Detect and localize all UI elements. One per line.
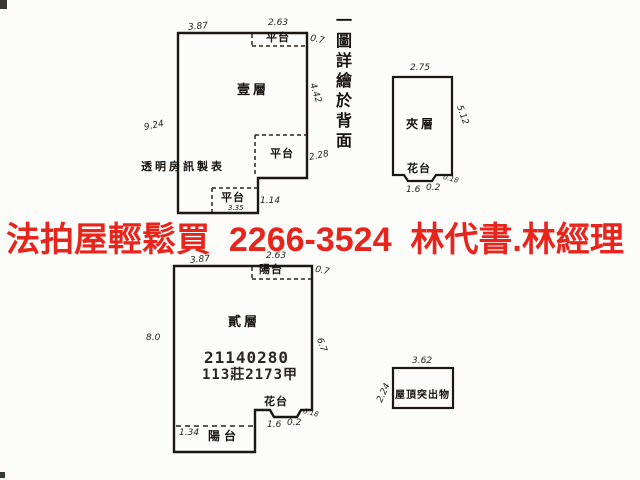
scan-artifact-bottom-left: [0, 472, 5, 478]
ff-dim-platform-bottom-height: 1.14: [260, 196, 280, 206]
sf-room-label: 貳層: [228, 316, 260, 329]
sf-dim-flower-mid: 0.2: [287, 418, 301, 428]
floorplan-scan: 一圖詳繪於背面 3.87 2.63 平台 0.7 壹層 4.42 9.24 平台…: [0, 0, 640, 480]
ff-maker-note: 透明房訊製表: [141, 161, 225, 172]
sf-dim-top-right: 2.63: [266, 251, 286, 261]
mz-dim-flower-mid: 0.2: [426, 183, 440, 193]
mz-dim-top: 2.75: [410, 63, 430, 73]
sf-balcony-bottom-label: 陽台: [208, 430, 240, 442]
sf-dim-left: 8.0: [146, 333, 160, 343]
ff-dim-top-right: 2.63: [268, 18, 288, 28]
sf-dim-top-left: 3.87: [190, 254, 211, 266]
mz-flower-bed-label: 花台: [407, 163, 431, 174]
ad-banner: 法拍屋輕鬆買 2266-3524 林代書.林經理: [6, 212, 624, 261]
ff-room-label: 壹層: [237, 84, 269, 97]
mz-dim-flower-left: 1.6: [406, 185, 420, 195]
ff-platform-bottom-label: 平台: [221, 192, 245, 203]
side-note-vertical: 一圖詳繪於背面: [334, 12, 350, 152]
mz-room-label: 夾層: [406, 118, 436, 130]
sf-flower-bed-label: 花台: [264, 396, 288, 407]
sf-dim-balcony-height: 1.34: [179, 428, 199, 438]
ff-platform-top-label: 平台: [266, 32, 290, 43]
sf-case-number: 113莊2173甲: [202, 368, 298, 382]
sf-dim-flower-left: 1.6: [267, 420, 281, 430]
sf-stamp-number: 21140280: [204, 350, 289, 366]
first-floor-outline: [178, 33, 307, 213]
ff-dim-platform-bottom-width: 3.35: [228, 204, 244, 212]
roof-dim-top: 3.62: [412, 356, 432, 366]
ff-dim-top-left: 3.87: [188, 21, 209, 33]
roof-protrusion-outline: [393, 368, 453, 408]
sf-balcony-top-label: 陽台: [259, 264, 283, 275]
roof-label: 屋頂突出物: [395, 391, 450, 401]
ff-platform-mid-label: 平台: [270, 148, 294, 159]
scan-artifact-top-left: [0, 0, 7, 9]
